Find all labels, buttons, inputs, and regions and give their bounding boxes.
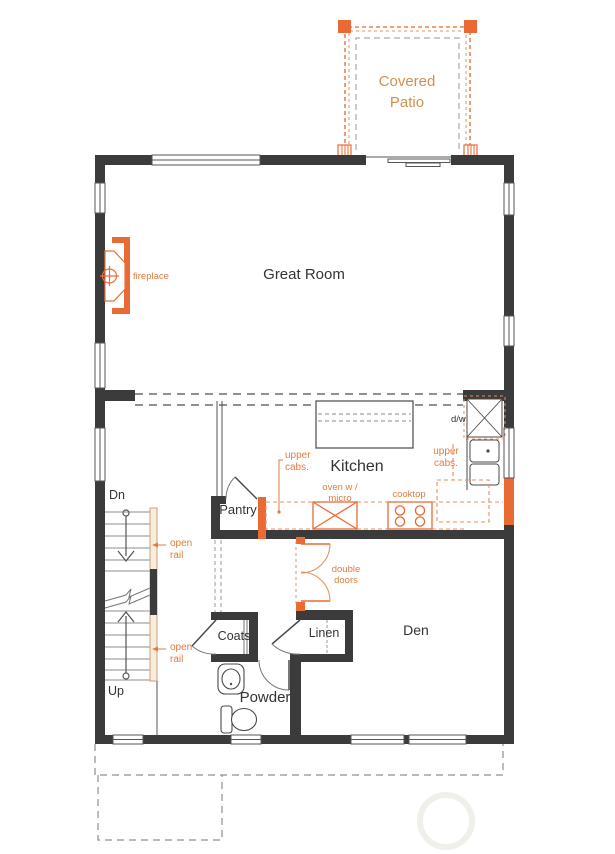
stair-break-line	[105, 585, 157, 608]
stairs	[105, 508, 157, 735]
coats-label: Coats	[218, 629, 251, 644]
soffit-dashed-lines	[215, 540, 221, 612]
floor-plan: Covered Patio Great Room fireplace Kitch…	[0, 0, 615, 854]
window	[95, 183, 105, 213]
patio-post	[338, 20, 351, 33]
upper-cabs-leader	[277, 460, 283, 514]
window	[231, 735, 261, 744]
window	[95, 343, 105, 388]
window	[504, 316, 514, 346]
sliding-door	[366, 153, 451, 167]
linen-label: Linen	[309, 626, 340, 641]
kitchen-half-wall	[217, 401, 222, 496]
cooktop-label: cooktop	[392, 489, 425, 500]
stairs-down-label: Dn	[109, 488, 125, 503]
kitchen-island	[316, 401, 413, 448]
open-rail-label-lower: open rail	[170, 642, 192, 666]
double-doors-label: double doors	[332, 564, 361, 586]
cooktop	[388, 502, 432, 529]
toilet	[221, 706, 257, 733]
stairs-up-label: Up	[108, 684, 124, 699]
coats-door	[192, 620, 216, 654]
window	[504, 183, 514, 215]
kitchen-label: Kitchen	[330, 457, 383, 476]
up-arrow	[118, 612, 134, 679]
window	[409, 735, 466, 744]
interior-walls	[95, 390, 514, 744]
double-doors	[296, 541, 330, 605]
powder-door	[259, 660, 289, 690]
pantry-label: Pantry	[219, 502, 257, 518]
fireplace-label: fireplace	[133, 271, 169, 282]
oven-micro-label: oven w / micro	[322, 483, 357, 504]
room-divider-dashed	[135, 394, 463, 405]
window	[351, 735, 404, 744]
porch-dashed-outline	[95, 744, 503, 840]
open-rail-label-upper: open rail	[170, 538, 192, 562]
stair-rail	[150, 508, 157, 681]
den-label: Den	[403, 622, 429, 639]
great-room-label: Great Room	[263, 266, 345, 284]
kitchen-sink	[467, 437, 499, 490]
pantry-door	[226, 477, 257, 499]
window	[113, 735, 143, 744]
watermark-circle	[420, 795, 472, 847]
covered-patio-label: Covered Patio	[379, 71, 436, 113]
linen-door	[272, 620, 300, 654]
dishwasher	[464, 396, 505, 439]
patio-post	[464, 20, 477, 33]
window	[152, 155, 260, 165]
powder-label: Powder	[240, 689, 291, 707]
dishwasher-label: d/w	[451, 414, 466, 425]
upper-cabs-right-label: upper cabs.	[433, 446, 459, 470]
floor-plan-drawing	[0, 0, 615, 854]
upper-cabs-left-label: upper cabs.	[285, 450, 311, 474]
oven-micro	[313, 502, 357, 529]
window	[95, 428, 105, 481]
